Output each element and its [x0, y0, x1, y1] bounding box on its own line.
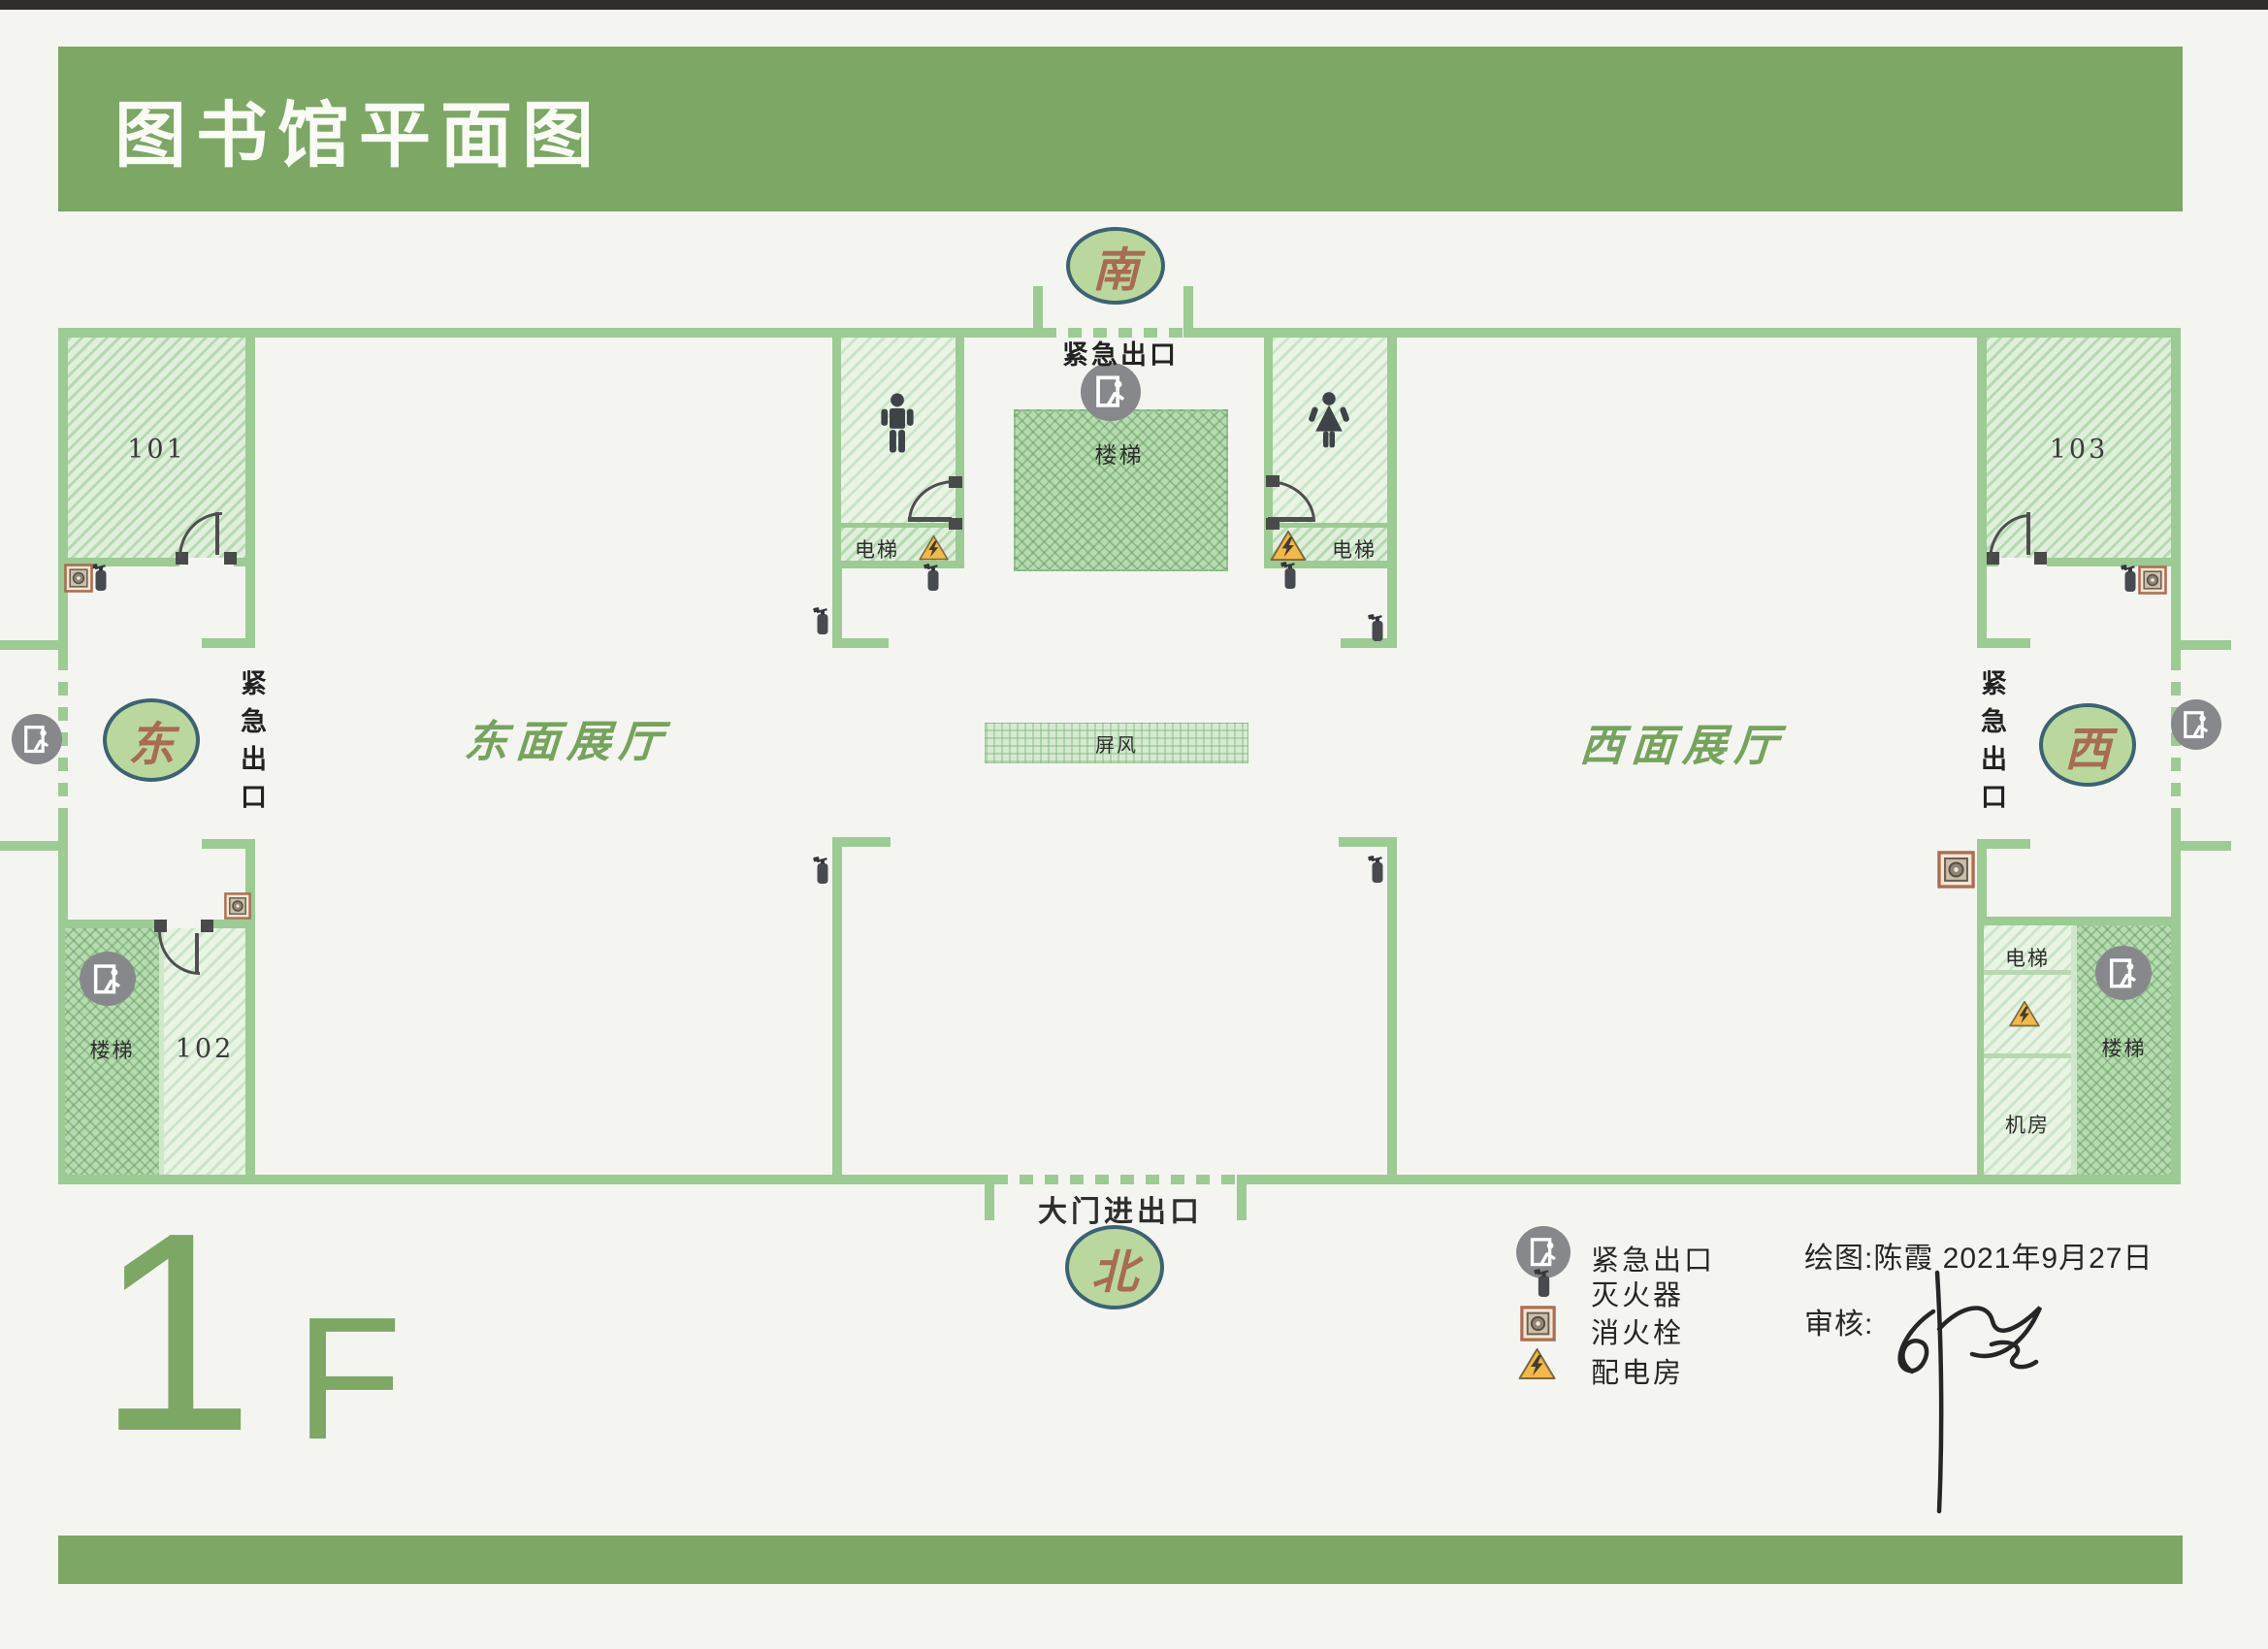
fire-extinguisher-icon	[1367, 854, 1388, 885]
power-room-icon	[2008, 1000, 2041, 1028]
title-banner: 图书馆平面图	[58, 47, 2183, 211]
floor-number: 1	[97, 1222, 254, 1443]
library-floor-plan-page: 图书馆平面图	[0, 0, 2268, 1649]
south-exit-stub-left	[1033, 286, 1043, 338]
compass-west-label: 西	[2064, 711, 2111, 779]
main-entrance-stub-left	[985, 1175, 994, 1220]
southeast-block-top-wall	[1977, 917, 2181, 925]
wall-right-upper	[2171, 328, 2181, 657]
east-exit-label: 紧急出口	[233, 669, 271, 821]
power-room-icon	[1517, 1347, 1557, 1381]
fire-extinguisher-icon	[1280, 560, 1301, 591]
southeast-elevator-label: 电梯	[1984, 943, 2071, 972]
fire-extinguisher-icon	[812, 605, 833, 636]
east-hall-label: 东面展厅	[415, 706, 721, 769]
room103-wall-stub	[1977, 638, 2030, 648]
main-entrance-opening	[994, 1175, 1237, 1184]
emergency-exit-icon	[80, 952, 136, 1006]
wall-top-left	[58, 328, 1033, 338]
compass-south-label: 南	[1092, 232, 1139, 300]
fire-extinguisher-icon	[923, 562, 944, 593]
southwest-block-top-wall-a	[58, 920, 155, 928]
wall-left-upper	[58, 328, 68, 657]
wall-top-right	[1193, 328, 2181, 338]
floor-indicator: 1 F	[97, 1218, 402, 1443]
emergency-exit-icon	[2171, 699, 2221, 750]
fire-extinguisher-icon	[1533, 1267, 1555, 1299]
reviewed-by-credit: 审核:	[1804, 1300, 1873, 1342]
left-elevator-label: 电梯	[842, 534, 912, 564]
bottom-accent-bar	[58, 1536, 2183, 1584]
south-exit-stub-right	[1183, 286, 1193, 338]
central-lower-right-wall	[1387, 837, 1397, 1184]
power-room-icon	[1269, 530, 1308, 563]
central-stairs-area	[1014, 409, 1228, 571]
southwest-stairs-label: 楼梯	[65, 1035, 159, 1064]
door-post	[1266, 518, 1280, 530]
scan-edge-artifact	[0, 0, 2268, 10]
east-lower-wall	[245, 839, 255, 1184]
door-post	[949, 476, 962, 488]
fire-hydrant-icon	[1520, 1306, 1556, 1342]
west-hall-label: 西面展厅	[1531, 710, 1836, 773]
fire-extinguisher-icon	[1367, 612, 1388, 643]
compass-north-label: 北	[1091, 1234, 1138, 1302]
door-post	[2034, 552, 2047, 565]
central-left-wall-stub	[832, 638, 889, 648]
room-102-label: 102	[164, 1034, 245, 1064]
emergency-exit-icon	[1081, 363, 1141, 421]
room101-wall-stub	[202, 638, 255, 648]
room103-left-wall	[1977, 328, 1987, 648]
screen-partition: 屏风	[985, 723, 1248, 763]
door-post	[1266, 475, 1280, 487]
west-vestibule-wall-bottom	[2181, 841, 2231, 851]
emergency-exit-icon	[12, 714, 62, 764]
fire-hydrant-icon	[1937, 851, 1975, 889]
emergency-exit-icon	[2095, 946, 2152, 1000]
male-figure-icon	[876, 393, 919, 455]
east-vestibule-wall-top	[0, 640, 58, 650]
main-entrance-stub-right	[1237, 1175, 1247, 1220]
southeast-stairs-label: 楼梯	[2077, 1033, 2171, 1062]
legend-fire-extinguisher-label: 灭火器	[1591, 1273, 1684, 1313]
floor-letter: F	[295, 1314, 402, 1443]
room101-right-wall	[245, 328, 255, 648]
compass-east: 东	[103, 698, 200, 782]
mens-room-right-wall	[956, 338, 964, 568]
compass-south: 南	[1066, 227, 1165, 305]
southwest-block-top-wall-b	[213, 920, 255, 928]
fire-hydrant-icon	[224, 892, 251, 920]
east-vestibule-wall-bottom	[0, 841, 58, 851]
southeast-room-divider-2	[1984, 1053, 2071, 1058]
west-vestibule-wall-top	[2181, 640, 2231, 650]
right-elevator-label: 电梯	[1319, 534, 1389, 564]
legend-fire-hydrant-label: 消火栓	[1591, 1310, 1684, 1351]
fire-extinguisher-icon	[812, 855, 833, 886]
page-title: 图书馆平面图	[58, 78, 603, 181]
legend-power-room-label: 配电房	[1591, 1350, 1684, 1391]
room-101-label: 101	[68, 435, 245, 465]
fire-hydrant-icon	[64, 564, 93, 593]
reviewer-signature	[1877, 1251, 2081, 1542]
main-entrance-label: 大门进出口	[1009, 1187, 1232, 1230]
central-right-wall	[1387, 328, 1397, 648]
central-stairs-label: 楼梯	[1014, 436, 1224, 469]
door-post	[224, 552, 237, 565]
door-post	[201, 920, 213, 932]
female-figure-icon	[1306, 391, 1352, 453]
wall-right-lower	[2171, 822, 2181, 1184]
fire-hydrant-icon	[2138, 566, 2167, 595]
compass-west: 西	[2039, 703, 2136, 787]
compass-east-label: 东	[128, 706, 175, 774]
power-room-icon	[918, 534, 950, 562]
south-exit-label: 紧急出口	[1028, 334, 1213, 372]
door-post	[949, 518, 962, 530]
screen-label: 屏风	[1095, 729, 1138, 758]
machine-room-label: 机房	[1984, 1110, 2071, 1139]
central-lower-left-wall	[832, 837, 842, 1184]
room-103-label: 103	[1987, 435, 2171, 465]
west-exit-label: 紧急出口	[1973, 669, 2011, 821]
fire-extinguisher-icon	[90, 562, 112, 593]
compass-north: 北	[1065, 1225, 1164, 1309]
